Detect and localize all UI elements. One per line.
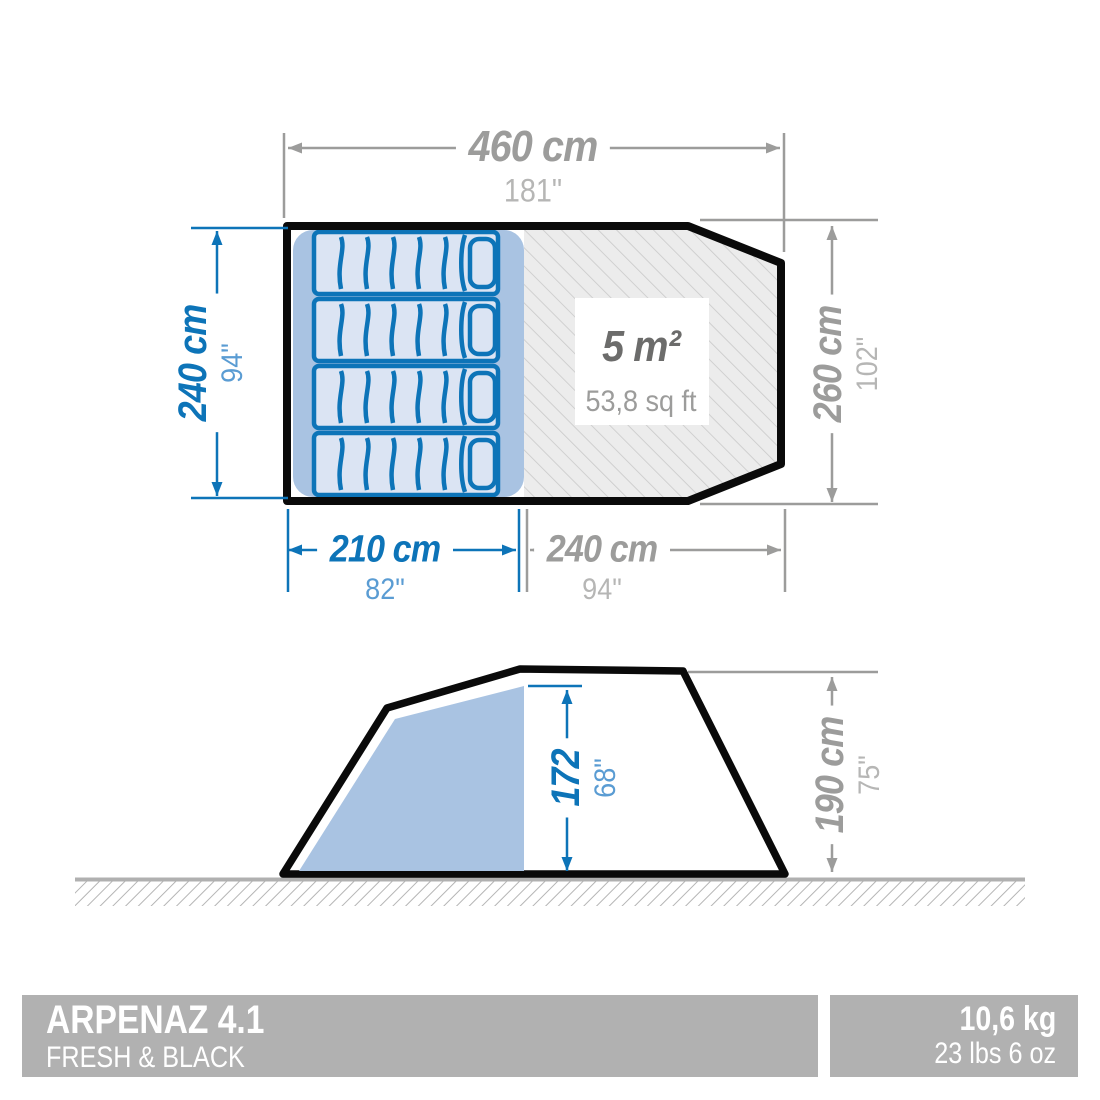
ground-hatch xyxy=(75,878,1025,906)
living-width-label: 240 cm xyxy=(534,529,670,572)
pillow-icon xyxy=(470,306,495,354)
pillow-icon xyxy=(470,373,495,421)
total-width-label: 460 cm xyxy=(456,122,610,172)
weight-banner: 10,6 kg 23 lbs 6 oz xyxy=(830,995,1078,1077)
mattress-icon xyxy=(314,366,498,428)
inner-height-label-group: 172 68" xyxy=(541,739,626,818)
product-line: FRESH & BLACK xyxy=(46,1041,245,1074)
total-width-inches: 181" xyxy=(504,173,562,210)
inner-height-inches: 68" xyxy=(590,749,622,806)
living-width-inches: 94" xyxy=(582,573,622,607)
bedroom-depth-label: 240 cm xyxy=(172,305,214,422)
bedroom-depth-label-group: 240 cm 94" xyxy=(168,294,253,432)
outer-height-inches: 75" xyxy=(854,717,886,834)
pillow-icon xyxy=(470,440,495,488)
inner-height-label: 172 xyxy=(545,749,587,806)
total-depth-label: 260 cm xyxy=(807,306,849,423)
mattress-icon xyxy=(314,299,498,361)
living-area-label: 5 m² xyxy=(602,322,680,372)
total-depth-inches: 102" xyxy=(852,306,884,423)
tent-dimension-diagram: 460 cm 181" 240 cm 94" 260 cm 102" 210 c… xyxy=(0,0,1100,1100)
weight-metric: 10,6 kg xyxy=(959,1002,1056,1038)
mattress-icon xyxy=(314,433,498,495)
bedroom-depth-inches: 94" xyxy=(217,305,249,422)
mattress-icon xyxy=(314,232,498,294)
weight-imperial: 23 lbs 6 oz xyxy=(934,1037,1056,1070)
outer-height-label-group: 190 cm 75" xyxy=(805,706,890,844)
bedroom-width-inches: 82" xyxy=(365,573,405,607)
pillow-icon xyxy=(470,239,495,287)
floor-plan xyxy=(287,226,781,501)
product-banner: ARPENAZ 4.1 FRESH & BLACK xyxy=(22,995,818,1077)
outer-height-label: 190 cm xyxy=(809,717,851,834)
living-area-imperial: 53,8 sq ft xyxy=(585,385,696,419)
total-depth-label-group: 260 cm 102" xyxy=(803,295,888,433)
product-name: ARPENAZ 4.1 xyxy=(46,999,264,1041)
bedroom-width-label: 210 cm xyxy=(317,529,453,572)
